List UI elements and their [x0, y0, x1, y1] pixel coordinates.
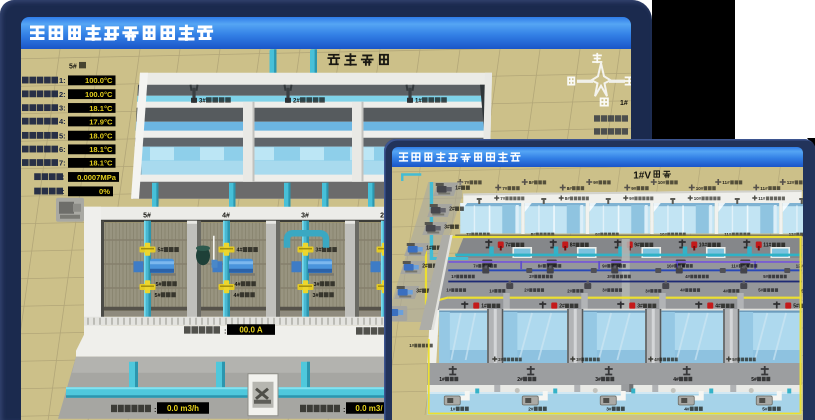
- svg-text:2#: 2#: [517, 377, 523, 383]
- svg-text:4#: 4#: [222, 212, 230, 219]
- svg-text:7#: 7#: [473, 263, 478, 268]
- svg-text:1#: 1#: [455, 186, 461, 192]
- svg-text:1#: 1#: [446, 288, 451, 293]
- svg-text:4#: 4#: [684, 407, 690, 413]
- svg-text:8#: 8#: [529, 180, 535, 185]
- svg-text:2#: 2#: [528, 407, 534, 413]
- svg-text:4#: 4#: [234, 292, 240, 298]
- svg-text:5#: 5#: [156, 281, 162, 287]
- svg-text:18.0°C: 18.0°C: [89, 131, 113, 140]
- svg-text:4:: 4:: [59, 117, 66, 126]
- svg-text:100.0°C: 100.0°C: [85, 76, 113, 85]
- svg-text:5#: 5#: [732, 357, 737, 362]
- svg-text:5#: 5#: [158, 247, 164, 253]
- svg-text:0.0 m3/: 0.0 m3/: [355, 404, 383, 413]
- svg-text:1#: 1#: [451, 274, 456, 279]
- svg-text:9#: 9#: [631, 186, 637, 191]
- svg-text:10#: 10#: [667, 263, 675, 268]
- svg-text:5#: 5#: [751, 377, 757, 383]
- svg-text:3#: 3#: [607, 274, 612, 279]
- svg-text:3#: 3#: [576, 357, 581, 362]
- svg-text:2#: 2#: [422, 264, 428, 270]
- svg-text:2#: 2#: [529, 274, 534, 279]
- svg-text:8#: 8#: [538, 263, 543, 268]
- svg-text:4#: 4#: [235, 281, 241, 287]
- svg-text:3#: 3#: [595, 377, 601, 383]
- svg-text:1#: 1#: [426, 246, 432, 252]
- svg-text:7:: 7:: [59, 158, 66, 167]
- svg-text:2:: 2:: [59, 89, 66, 98]
- svg-text:1#: 1#: [489, 288, 494, 293]
- svg-text:2#: 2#: [498, 357, 503, 362]
- svg-text:1#: 1#: [409, 343, 414, 348]
- svg-text::: :: [62, 172, 65, 181]
- svg-text:11#: 11#: [760, 186, 768, 191]
- svg-text:3#: 3#: [416, 289, 422, 295]
- svg-text:3#: 3#: [645, 288, 650, 293]
- svg-text:11#: 11#: [758, 196, 766, 201]
- svg-text:12#: 12#: [787, 180, 795, 185]
- svg-text::: :: [154, 404, 157, 413]
- svg-text:5#: 5#: [155, 292, 161, 298]
- svg-text:4#: 4#: [237, 247, 243, 253]
- svg-text:5#: 5#: [763, 274, 768, 279]
- svg-text:2#: 2#: [293, 98, 300, 104]
- svg-text:10#: 10#: [694, 196, 702, 201]
- svg-text:3#: 3#: [606, 407, 612, 413]
- svg-text:3#: 3#: [313, 292, 319, 298]
- svg-text:3#: 3#: [316, 247, 322, 253]
- svg-text:9#: 9#: [629, 196, 634, 201]
- svg-text:4#: 4#: [654, 357, 659, 362]
- svg-text:2#: 2#: [449, 207, 455, 213]
- svg-text:5#: 5#: [69, 63, 77, 70]
- svg-text:100.0°C: 100.0°C: [85, 89, 113, 98]
- svg-text:17.9°C: 17.9°C: [89, 117, 113, 126]
- svg-text:8#: 8#: [565, 196, 570, 201]
- svg-text:4#: 4#: [673, 377, 679, 383]
- svg-text:9#: 9#: [634, 243, 640, 249]
- svg-text:3#: 3#: [301, 212, 309, 219]
- svg-text:1#: 1#: [415, 98, 422, 104]
- svg-text::: :: [224, 326, 227, 335]
- svg-text:11#: 11#: [722, 180, 730, 185]
- svg-text:8#: 8#: [570, 243, 576, 249]
- svg-text:10#: 10#: [658, 180, 666, 185]
- svg-text:1#V: 1#V: [633, 171, 651, 182]
- svg-text:00.0 A: 00.0 A: [239, 325, 262, 334]
- svg-text:3#: 3#: [444, 225, 450, 231]
- svg-text:2#: 2#: [524, 288, 529, 293]
- svg-text:3:: 3:: [59, 103, 66, 112]
- svg-text:2#: 2#: [567, 288, 572, 293]
- svg-text:8#: 8#: [567, 186, 573, 191]
- svg-text:0.0 m3/h: 0.0 m3/h: [167, 404, 199, 413]
- svg-text:9#: 9#: [593, 180, 599, 185]
- svg-text:4#: 4#: [680, 288, 685, 293]
- svg-text:6:: 6:: [59, 145, 66, 154]
- svg-text::: :: [343, 404, 346, 413]
- svg-text:5:: 5:: [59, 131, 66, 140]
- svg-text:7#: 7#: [505, 243, 511, 249]
- svg-text:11#: 11#: [763, 243, 771, 249]
- svg-text::: :: [62, 187, 65, 196]
- svg-text:18.1°C: 18.1°C: [89, 103, 113, 112]
- svg-text:1#: 1#: [439, 377, 445, 383]
- svg-text:5#: 5#: [758, 288, 763, 293]
- svg-text:1#: 1#: [450, 407, 456, 413]
- svg-text:5#: 5#: [762, 407, 768, 413]
- svg-text:10#: 10#: [696, 186, 704, 191]
- svg-text:7#: 7#: [464, 180, 470, 185]
- svg-text:4#: 4#: [723, 288, 728, 293]
- svg-text:3#: 3#: [314, 281, 320, 287]
- svg-text:11#: 11#: [731, 263, 739, 268]
- svg-text:1:: 1:: [59, 76, 66, 85]
- svg-text:3#: 3#: [602, 288, 607, 293]
- svg-text:7#: 7#: [500, 196, 505, 201]
- svg-text:7#: 7#: [502, 186, 508, 191]
- svg-text:5#: 5#: [143, 212, 151, 219]
- svg-text:0%: 0%: [99, 187, 110, 196]
- svg-text:12#: 12#: [796, 263, 803, 268]
- svg-text:4#: 4#: [685, 274, 690, 279]
- svg-text:9#: 9#: [602, 263, 607, 268]
- svg-text:0.0007MPa: 0.0007MPa: [77, 172, 117, 181]
- svg-text:18.1°C: 18.1°C: [89, 145, 113, 154]
- svg-text:1#: 1#: [620, 99, 628, 106]
- svg-text:18.1°C: 18.1°C: [89, 158, 113, 167]
- svg-text:3#: 3#: [199, 98, 206, 104]
